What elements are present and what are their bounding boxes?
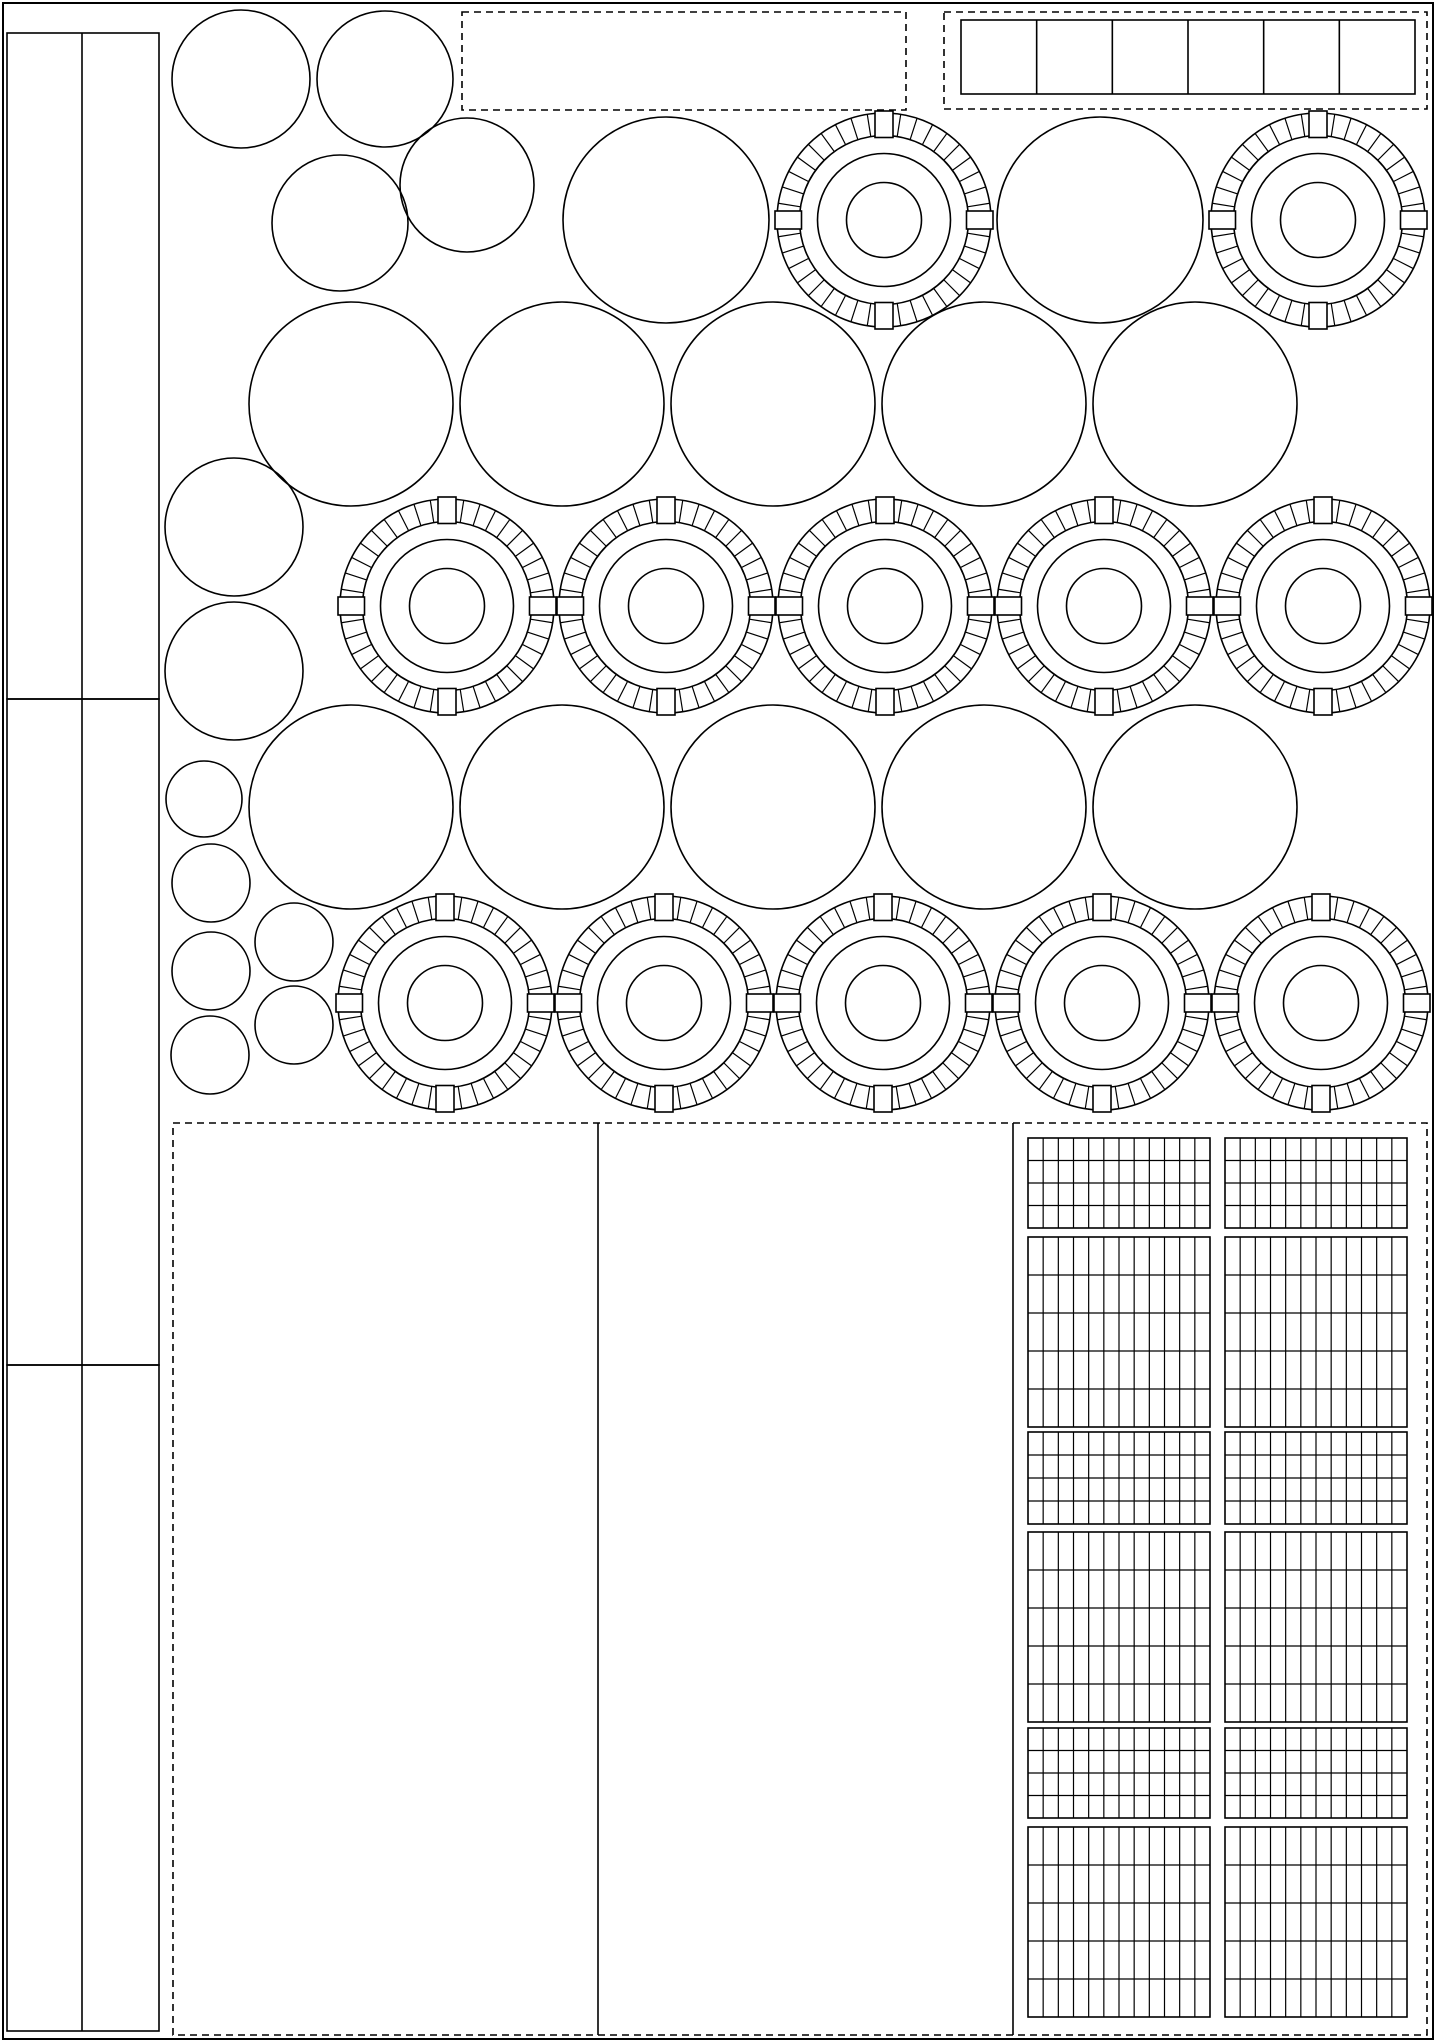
- tread-tick: [798, 656, 816, 669]
- tread-tick: [923, 681, 933, 701]
- tread-tick: [1242, 144, 1258, 160]
- tread-tick: [384, 674, 397, 692]
- tread-tick: [505, 1063, 521, 1079]
- tread-tick: [360, 656, 378, 669]
- tread-block-wrap: [1095, 497, 1113, 524]
- tread-tick: [749, 589, 771, 593]
- tread-tick: [1359, 908, 1369, 928]
- tread-tick: [1115, 1086, 1119, 1108]
- tread-block: [436, 894, 454, 921]
- tread-block-wrap: [1095, 689, 1113, 716]
- tread-tick: [704, 511, 714, 531]
- tread-tick: [483, 908, 493, 928]
- tread-tick: [702, 1078, 712, 1098]
- tread-tick: [603, 519, 616, 537]
- tread-tick: [1406, 619, 1428, 623]
- wheel-hub-circle: [408, 966, 483, 1041]
- tread-tick: [909, 1083, 916, 1104]
- tread-tick: [834, 1078, 844, 1098]
- tread-tick: [1331, 303, 1335, 325]
- tread-tick: [558, 986, 580, 990]
- tread-tick: [558, 1016, 580, 1020]
- tread-block-wrap: [657, 689, 675, 716]
- tread-block-wrap: [555, 994, 582, 1012]
- tread-tick: [1154, 674, 1167, 692]
- tread-tick: [343, 970, 364, 977]
- tread-tick: [601, 1071, 614, 1089]
- tread-block-wrap: [655, 1086, 673, 1113]
- tread-tick: [1028, 666, 1044, 682]
- tread-block-wrap: [1406, 597, 1433, 615]
- grid-block: [1225, 1138, 1407, 1228]
- tread-tick: [778, 203, 800, 207]
- grid-block: [1028, 1138, 1210, 1228]
- tread-block: [655, 1086, 673, 1113]
- tread-tick: [1164, 666, 1180, 682]
- tread-tick: [910, 300, 917, 321]
- tread-tick: [789, 258, 809, 268]
- tread-tick: [1288, 901, 1295, 922]
- tread-tick: [515, 543, 533, 556]
- tread-tick: [1301, 303, 1305, 325]
- strip-outline: [7, 699, 159, 1365]
- tread-block-wrap: [438, 497, 456, 524]
- tread-tick: [1130, 686, 1137, 707]
- tread-tick: [1053, 908, 1063, 928]
- tread-tick: [1140, 908, 1150, 928]
- tread-tick: [739, 954, 759, 964]
- disc-large: [1093, 302, 1297, 506]
- tread-tick: [471, 901, 478, 922]
- tread-tick: [968, 619, 990, 623]
- tread-tick: [1179, 557, 1199, 567]
- tread-tick: [414, 504, 421, 525]
- tread-tick: [1142, 681, 1152, 701]
- tread-tick: [398, 511, 408, 531]
- tread-tick: [1378, 144, 1394, 160]
- tread-tick: [963, 1029, 984, 1036]
- tread-tick: [909, 901, 916, 922]
- tread-tick: [358, 1053, 376, 1066]
- tread-tick: [867, 303, 871, 325]
- tread-tick: [1393, 258, 1413, 268]
- tread-tick: [716, 674, 729, 692]
- tread-tick: [951, 940, 969, 953]
- tread-tick: [345, 632, 366, 639]
- tread-block: [555, 994, 582, 1012]
- tread-block: [336, 994, 363, 1012]
- tread-block: [438, 689, 456, 716]
- tread-tick: [560, 619, 582, 623]
- tread-tick: [1221, 573, 1242, 580]
- bottom-panel: [173, 1123, 1427, 2035]
- tread-tick: [789, 171, 809, 181]
- tread-tick: [959, 258, 979, 268]
- tread-tick: [352, 644, 372, 654]
- tread-tick: [1053, 1078, 1063, 1098]
- tread-block-wrap: [875, 303, 893, 330]
- tread-tick: [1347, 901, 1354, 922]
- disc-large: [882, 705, 1086, 909]
- tread-tick: [732, 1053, 750, 1066]
- tread-tick: [414, 686, 421, 707]
- tread-tick: [739, 1041, 759, 1051]
- disc-small: [172, 844, 250, 922]
- wheel-template: [775, 111, 993, 329]
- tread-tick: [1371, 1071, 1384, 1089]
- wheel-template: [993, 894, 1211, 1112]
- tread-tick: [350, 954, 370, 964]
- tread-tick: [967, 203, 989, 207]
- tread-tick: [834, 908, 844, 928]
- tread-tick: [1177, 1041, 1197, 1051]
- tread-block-wrap: [1404, 994, 1431, 1012]
- tread-block-wrap: [1309, 303, 1327, 330]
- tread-block-wrap: [876, 689, 894, 716]
- tread-tick: [1269, 295, 1279, 315]
- wheel-rim-circle: [1038, 540, 1171, 673]
- wheel-template: [774, 894, 992, 1112]
- tread-tick: [1304, 1086, 1308, 1108]
- wheel-template: [776, 497, 994, 715]
- tread-tick: [821, 133, 834, 151]
- tread-block-wrap: [993, 994, 1020, 1012]
- tread-tick: [631, 901, 638, 922]
- tread-tick: [601, 916, 614, 934]
- wheel-tread-circle: [582, 522, 751, 691]
- divider-strip: [7, 1365, 159, 2031]
- tread-tick: [968, 589, 990, 593]
- tread-tick: [953, 543, 971, 556]
- tread-tick: [1288, 1083, 1295, 1104]
- tread-tick: [1269, 125, 1279, 145]
- tread-tick: [382, 916, 395, 934]
- tread-block: [655, 894, 673, 921]
- tread-tick: [951, 1053, 969, 1066]
- tread-tick: [741, 644, 761, 654]
- tread-tick: [1170, 1053, 1188, 1066]
- tread-block-wrap: [874, 894, 892, 921]
- disc-medium: [165, 602, 303, 740]
- tread-block: [657, 497, 675, 524]
- tread-tick: [588, 927, 604, 943]
- tread-block-wrap: [1187, 597, 1214, 615]
- tread-block-wrap: [438, 689, 456, 716]
- divider-strip: [7, 699, 159, 1365]
- tread-tick: [396, 908, 406, 928]
- tread-tick: [724, 1063, 740, 1079]
- tread-tick: [692, 686, 699, 707]
- tread-tick: [1398, 557, 1418, 567]
- wheel-template: [995, 497, 1213, 715]
- grid-block: [1225, 1237, 1407, 1427]
- tread-tick: [571, 644, 591, 654]
- tread-block: [967, 211, 994, 229]
- tread-tick: [744, 970, 765, 977]
- tread-tick: [1217, 619, 1239, 623]
- tread-block: [1095, 497, 1113, 524]
- grid-blocks: [1028, 1138, 1407, 2017]
- wheel-template: [1212, 894, 1430, 1112]
- tread-tick: [896, 1086, 900, 1108]
- tread-tick: [898, 689, 902, 711]
- tread-block-wrap: [557, 597, 584, 615]
- wheel-tread-circle: [580, 919, 749, 1088]
- tread-block-wrap: [655, 894, 673, 921]
- tread-tick: [528, 986, 550, 990]
- tread-tick: [649, 500, 653, 522]
- tread-tick: [966, 1016, 988, 1020]
- wheel-hub-circle: [846, 966, 921, 1041]
- tread-tick: [1039, 916, 1052, 934]
- tread-tick: [579, 543, 597, 556]
- tread-tick: [867, 114, 871, 136]
- tread-tick: [1304, 897, 1308, 919]
- tread-tick: [714, 916, 727, 934]
- tread-block: [1401, 211, 1428, 229]
- tread-block: [876, 689, 894, 716]
- tread-block-wrap: [747, 994, 774, 1012]
- tread-tick: [953, 656, 971, 669]
- tread-tick: [958, 1041, 978, 1051]
- tread-tick: [371, 666, 387, 682]
- tread-tick: [966, 986, 988, 990]
- tread-tick: [1017, 543, 1035, 556]
- strip-outline: [7, 33, 159, 699]
- wheel-tread-circle: [363, 522, 532, 691]
- tread-tick: [369, 927, 385, 943]
- tread-block-wrap: [995, 597, 1022, 615]
- tread-block-wrap: [875, 111, 893, 138]
- tread-tick: [822, 674, 835, 692]
- tread-tick: [633, 686, 640, 707]
- grid-block: [1028, 1728, 1210, 1818]
- disc-small: [255, 903, 333, 981]
- tread-tick: [590, 666, 606, 682]
- wheel-tread-circle: [1239, 522, 1408, 691]
- tread-block-wrap: [775, 211, 802, 229]
- tread-tick: [783, 632, 804, 639]
- wheel-template: [338, 497, 556, 715]
- tread-tick: [1187, 589, 1209, 593]
- template-sheet: [0, 0, 1437, 2043]
- tread-tick: [835, 125, 845, 145]
- tread-block: [1095, 689, 1113, 716]
- tread-block-wrap: [776, 597, 803, 615]
- tread-tick: [866, 897, 870, 919]
- tread-tick: [964, 246, 985, 253]
- tread-tick: [520, 954, 540, 964]
- tread-tick: [1172, 656, 1190, 669]
- tread-tick: [615, 908, 625, 928]
- tread-tick: [797, 157, 815, 170]
- tread-block: [1093, 1086, 1111, 1113]
- tread-block-wrap: [657, 497, 675, 524]
- tread-tick: [1285, 300, 1292, 321]
- tread-tick: [959, 171, 979, 181]
- tread-tick: [945, 530, 961, 546]
- tread-tick: [1306, 500, 1310, 522]
- tread-tick: [1128, 1083, 1135, 1104]
- tread-tick: [343, 1029, 364, 1036]
- tread-tick: [1306, 689, 1310, 711]
- tread-block-wrap: [336, 994, 363, 1012]
- tread-tick: [1087, 500, 1091, 522]
- tread-tick: [898, 500, 902, 522]
- tread-tick: [1215, 986, 1237, 990]
- tread-tick: [952, 157, 970, 170]
- tread-tick: [1258, 916, 1271, 934]
- tread-block-wrap: [876, 497, 894, 524]
- tread-tick: [809, 530, 825, 546]
- tread-tick: [797, 270, 815, 283]
- tread-tick: [1182, 970, 1203, 977]
- tread-tick: [1290, 686, 1297, 707]
- bottom-dashed-outline: [173, 1123, 1427, 2035]
- tread-tick: [897, 303, 901, 325]
- tread-block: [1314, 689, 1332, 716]
- tread-tick: [1231, 270, 1249, 283]
- tread-tick: [1212, 203, 1234, 207]
- tread-tick: [339, 986, 361, 990]
- tread-tick: [458, 897, 462, 919]
- tread-tick: [1359, 1078, 1369, 1098]
- wheel-tread-circle: [800, 136, 969, 305]
- tread-tick: [1028, 530, 1044, 546]
- tread-tick: [809, 666, 825, 682]
- tread-tick: [564, 632, 585, 639]
- tread-tick: [1212, 233, 1234, 237]
- tread-tick: [396, 1078, 406, 1098]
- tread-block: [775, 211, 802, 229]
- tread-tick: [922, 295, 932, 315]
- tread-tick: [1373, 674, 1386, 692]
- tread-tick: [497, 519, 510, 537]
- tread-tick: [1069, 901, 1076, 922]
- tread-tick: [369, 1063, 385, 1079]
- grid-block: [1225, 1827, 1407, 2017]
- tread-tick: [935, 674, 948, 692]
- tread-tick: [1017, 656, 1035, 669]
- tread-tick: [577, 940, 595, 953]
- tread-tick: [808, 144, 824, 160]
- wheel-hub-circle: [1284, 966, 1359, 1041]
- tread-block: [1187, 597, 1214, 615]
- tread-block-wrap: [530, 597, 557, 615]
- tread-block-wrap: [1314, 689, 1332, 716]
- tread-tick: [996, 1016, 1018, 1020]
- tread-block: [1309, 111, 1327, 138]
- tread-tick: [1401, 1029, 1422, 1036]
- tread-tick: [690, 1083, 697, 1104]
- tread-tick: [1285, 118, 1292, 139]
- tread-tick: [1152, 916, 1165, 934]
- tread-block-wrap: [436, 894, 454, 921]
- tread-tick: [777, 1016, 799, 1020]
- tread-block: [438, 497, 456, 524]
- tread-tick: [781, 970, 802, 977]
- wheel-rim-circle: [1255, 937, 1388, 1070]
- tread-block-wrap: [1214, 597, 1241, 615]
- tread-tick: [1406, 589, 1428, 593]
- tread-tick: [588, 1063, 604, 1079]
- tread-tick: [821, 288, 834, 306]
- tread-tick: [1007, 954, 1027, 964]
- tread-tick: [562, 1029, 583, 1036]
- tread-tick: [732, 940, 750, 953]
- tread-block: [528, 994, 555, 1012]
- tread-tick: [747, 1016, 769, 1020]
- wheel-rim-circle: [818, 154, 951, 287]
- disc-small: [171, 1016, 249, 1094]
- tread-tick: [716, 519, 729, 537]
- tread-tick: [796, 940, 814, 953]
- tread-tick: [358, 940, 376, 953]
- tread-block: [1214, 597, 1241, 615]
- tread-tick: [868, 500, 872, 522]
- tread-tick: [1344, 300, 1351, 321]
- tread-tick: [1179, 644, 1199, 654]
- tread-tick: [923, 511, 933, 531]
- strip-outline: [7, 1365, 159, 2031]
- tread-tick: [1142, 511, 1152, 531]
- tread-tick: [807, 927, 823, 943]
- tread-tick: [943, 1063, 959, 1079]
- tread-block: [436, 1086, 454, 1113]
- grid-block: [1225, 1728, 1407, 1818]
- tread-tick: [528, 1016, 550, 1020]
- divider-strip: [7, 33, 159, 699]
- grid-block: [1225, 1532, 1407, 1722]
- wheel-rim-circle: [819, 540, 952, 673]
- tread-tick: [944, 280, 960, 296]
- grid-block: [1028, 1432, 1210, 1524]
- tread-tick: [530, 619, 552, 623]
- tread-tick: [382, 1071, 395, 1089]
- disc-small: [166, 761, 242, 837]
- wheel-rim-circle: [598, 937, 731, 1070]
- tread-tick: [1115, 897, 1119, 919]
- tread-tick: [1245, 927, 1261, 943]
- wheel-hub-circle: [410, 569, 485, 644]
- tread-tick: [692, 504, 699, 525]
- tread-tick: [734, 543, 752, 556]
- tread-block-wrap: [967, 211, 994, 229]
- tread-tick: [1170, 940, 1188, 953]
- tread-tick: [352, 557, 372, 567]
- tread-block-wrap: [1401, 211, 1428, 229]
- tread-tick: [527, 573, 548, 580]
- disc-large: [997, 117, 1203, 323]
- tread-block: [874, 1086, 892, 1113]
- disc-large: [249, 705, 453, 909]
- tread-tick: [1398, 246, 1419, 253]
- tread-tick: [726, 666, 742, 682]
- wheel-template: [336, 894, 554, 1112]
- wheel-tread-circle: [801, 522, 970, 691]
- tread-tick: [934, 288, 947, 306]
- tread-tick: [746, 632, 767, 639]
- tread-tick: [850, 1083, 857, 1104]
- tread-tick: [649, 689, 653, 711]
- tread-tick: [781, 1029, 802, 1036]
- tread-tick: [1255, 133, 1268, 151]
- wheel-hub-circle: [629, 569, 704, 644]
- tread-block-wrap: [966, 994, 993, 1012]
- tread-tick: [527, 632, 548, 639]
- tread-tick: [1349, 504, 1356, 525]
- tread-tick: [1187, 619, 1209, 623]
